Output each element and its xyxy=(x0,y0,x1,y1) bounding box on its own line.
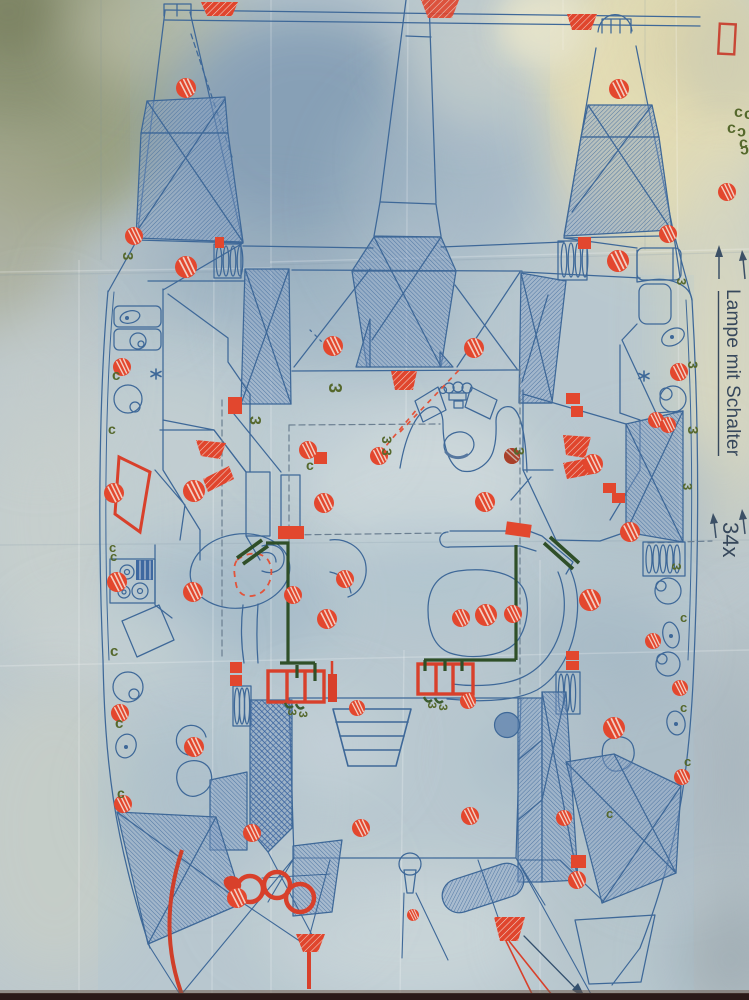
svg-text:3: 3 xyxy=(680,483,695,490)
svg-text:3: 3 xyxy=(379,436,395,444)
svg-text:c: c xyxy=(108,421,116,437)
svg-text:3: 3 xyxy=(119,252,136,260)
svg-text:3: 3 xyxy=(296,711,310,718)
svg-text:c: c xyxy=(684,754,691,769)
svg-text:3: 3 xyxy=(685,361,701,369)
svg-text:c: c xyxy=(727,120,736,137)
svg-text:3: 3 xyxy=(674,278,689,285)
svg-text:c: c xyxy=(680,610,687,625)
svg-text:3: 3 xyxy=(246,416,263,425)
svg-text:c: c xyxy=(734,104,743,121)
svg-text:c: c xyxy=(680,700,687,715)
svg-text:3: 3 xyxy=(436,704,450,711)
svg-text:c: c xyxy=(306,457,314,473)
svg-text:c: c xyxy=(606,806,613,821)
svg-text:c: c xyxy=(744,106,749,123)
svg-text:Lampe mit Schalter: Lampe mit Schalter xyxy=(722,289,743,457)
svg-text:c: c xyxy=(740,142,749,159)
svg-text:c: c xyxy=(117,785,125,801)
svg-text:3: 3 xyxy=(325,383,345,393)
svg-text:c: c xyxy=(110,643,118,660)
svg-text:c: c xyxy=(110,549,117,564)
svg-text:3: 3 xyxy=(379,448,395,456)
svg-text:3: 3 xyxy=(510,447,527,455)
svg-text:c: c xyxy=(115,715,123,732)
svg-text:34x: 34x xyxy=(718,522,743,557)
svg-text:3: 3 xyxy=(669,563,684,570)
svg-text:c: c xyxy=(112,367,120,384)
svg-text:3: 3 xyxy=(684,426,701,434)
